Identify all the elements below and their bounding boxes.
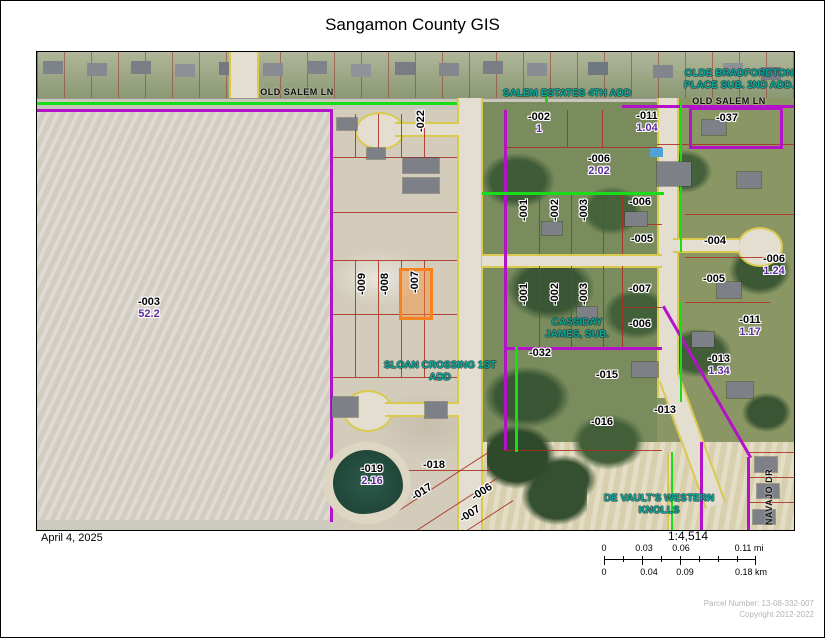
- parcel-line: [685, 302, 770, 303]
- map-date: April 4, 2025: [41, 532, 103, 544]
- parcel-line: [331, 314, 457, 315]
- trees: [482, 142, 662, 357]
- parcel-line: [401, 114, 402, 157]
- yellow-road-edge: [667, 452, 669, 530]
- parcel-line: [571, 195, 572, 254]
- parcel-line: [331, 212, 457, 213]
- parcel-line: [685, 214, 794, 215]
- purple-boundary: [700, 442, 703, 530]
- scalebar-line: [604, 559, 756, 566]
- house-roof: [337, 118, 357, 130]
- parcel-line: [571, 266, 572, 347]
- purple-boundary: [37, 109, 333, 112]
- house-roofs-row: [43, 61, 63, 74]
- large-parcel-field[interactable]: [37, 111, 331, 520]
- house-roof: [757, 484, 779, 498]
- purple-boundary: [747, 457, 750, 530]
- house-roof: [657, 162, 691, 186]
- scalebar-tick: [680, 556, 681, 565]
- scale-ratio: 1:4,514: [668, 529, 708, 543]
- parcel-line: [602, 110, 603, 147]
- scalebar-tick: [623, 556, 624, 562]
- cassiday-road: [482, 254, 662, 268]
- purple-boundary: [504, 347, 662, 350]
- house-roof: [332, 397, 358, 417]
- page-title: Sangamon County GIS: [1, 15, 824, 35]
- sloan-crossing-road: [457, 98, 483, 530]
- cul-de-sac-street: [673, 238, 739, 253]
- parcel-line: [504, 147, 662, 148]
- parcel-line: [378, 260, 379, 377]
- house-roof: [727, 382, 753, 398]
- scalebar-tick: [642, 556, 643, 565]
- parcel-line: [603, 195, 604, 254]
- house-roof: [403, 158, 439, 173]
- house-roof: [702, 120, 726, 135]
- copyright-text: Copyright 2012-2022: [704, 609, 814, 620]
- house-roof: [367, 148, 385, 159]
- residential-strip: [37, 52, 794, 98]
- cul-de-sac: [737, 227, 783, 267]
- page: Sangamon County GIS: [0, 0, 825, 638]
- house-roof: [755, 457, 777, 472]
- map-credits: Parcel Number: 13-08-332-007 Copyright 2…: [704, 598, 814, 620]
- green-boundary-line: [671, 452, 673, 530]
- parcel-line: [424, 114, 425, 157]
- highlighted-parcel[interactable]: [399, 268, 433, 320]
- green-boundary-line: [680, 302, 682, 402]
- parcel-line: [331, 260, 457, 261]
- house-roof: [753, 510, 775, 524]
- trees: [487, 417, 587, 530]
- scalebar-tick: [755, 556, 756, 565]
- parcel-line: [685, 257, 770, 258]
- green-boundary-line: [482, 192, 664, 195]
- scalebar-tick: [604, 556, 605, 565]
- parcel-line: [539, 195, 540, 254]
- scalebar-tick: [718, 556, 719, 562]
- bottom-left-road: [37, 520, 331, 530]
- parcel-line: [331, 377, 457, 378]
- parcel-number-text: Parcel Number: 13-08-332-007: [704, 598, 814, 609]
- parcel-line: [622, 307, 662, 308]
- map-canvas[interactable]: OLD SALEM LN OLD SALEM LN NAVAJO DR SALE…: [36, 51, 795, 531]
- house-roof: [737, 172, 761, 188]
- house-roof: [425, 402, 447, 418]
- side-street: [229, 52, 259, 98]
- swimming-pool: [650, 148, 663, 157]
- parcel-line: [504, 450, 662, 451]
- parcel-line: [355, 260, 356, 377]
- house-roof: [542, 222, 562, 235]
- house-roof: [577, 307, 597, 320]
- house-roof: [692, 332, 714, 347]
- parcel-line: [567, 110, 568, 147]
- parcel-line: [539, 266, 540, 347]
- parcel-line: [749, 452, 794, 453]
- scalebar-tick: [737, 556, 738, 562]
- scalebar-tick: [661, 556, 662, 562]
- house-roof: [403, 178, 439, 193]
- scalebar-tick: [699, 556, 700, 562]
- house-roof: [625, 212, 647, 226]
- parcel-line: [603, 266, 604, 347]
- green-boundary-line: [515, 347, 518, 452]
- house-roof: [632, 362, 658, 377]
- parcel-line: [749, 502, 794, 503]
- house-roof: [717, 282, 741, 298]
- cul-de-sac-street: [395, 122, 459, 137]
- parcel-line: [749, 477, 794, 478]
- purple-boundary: [504, 110, 507, 450]
- cul-de-sac-street: [385, 402, 459, 417]
